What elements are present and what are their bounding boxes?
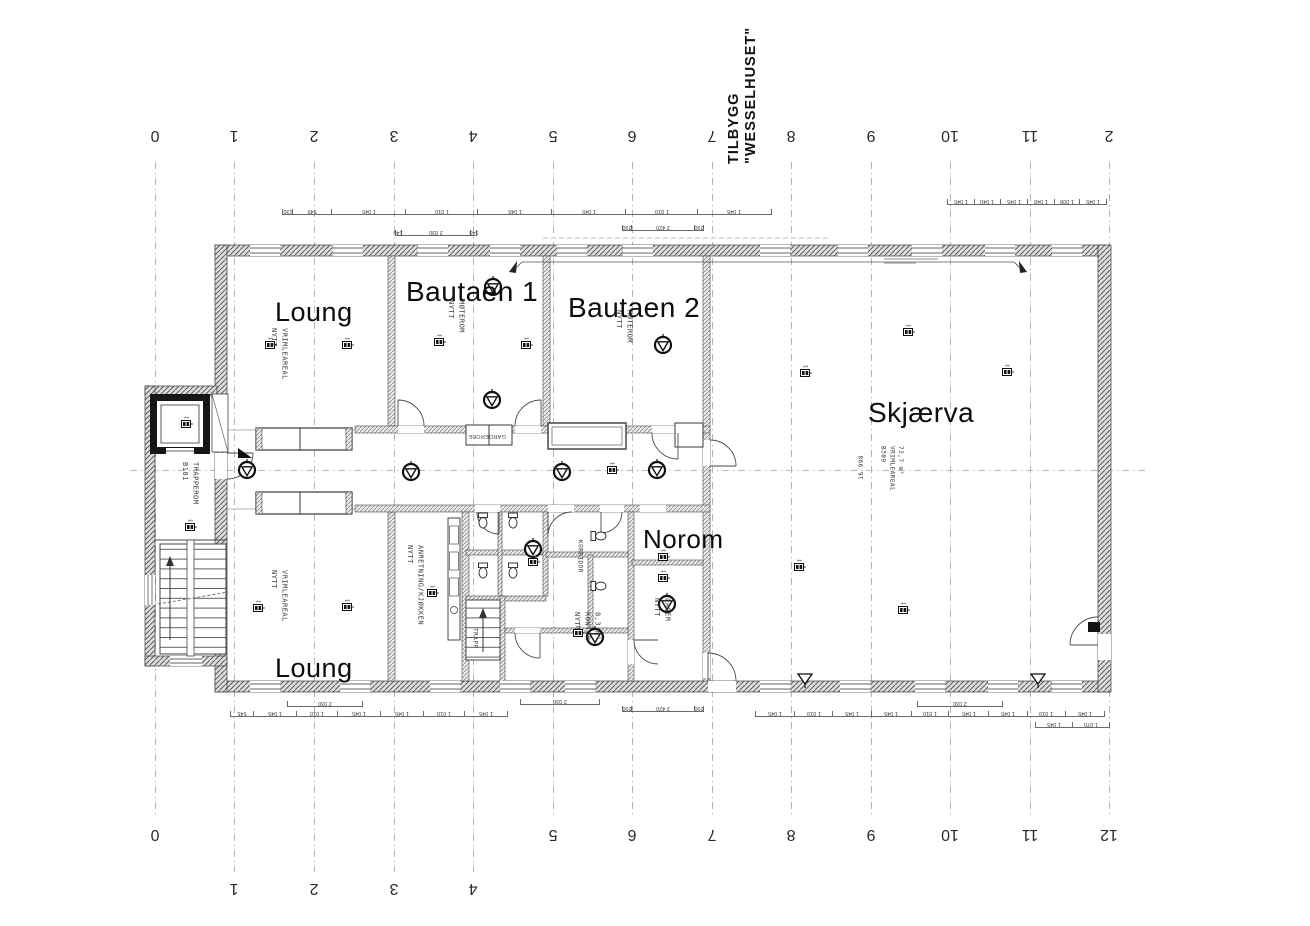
dimension-segment: 545 — [293, 209, 332, 214]
room-label-bautaen-1: Bautaen 1 — [406, 276, 538, 308]
dimension-chain-top-left-opening: 1402 030140 — [395, 226, 477, 236]
room-label-norom: Norom — [643, 524, 724, 555]
annotation-vrimleareal-bottom: NYTT VRIMLEAREAL — [269, 570, 289, 622]
electrical-point-icon — [795, 561, 806, 571]
ventilation-valve-icon — [239, 459, 255, 478]
window-icon — [565, 681, 595, 692]
dimension-chain-bottom-mid-opening: 2902 420290 — [622, 702, 704, 712]
dimension-segment: 1 045 — [478, 209, 552, 214]
dimension-segment: 290 — [695, 706, 704, 711]
dimension-segment: 2 420 — [632, 225, 696, 230]
dimension-chain-top-right: 1 0451 0401 0451 0481 0081 045 — [947, 195, 1107, 205]
window-icon — [333, 245, 363, 256]
dimension-chain-top-mid-opening: 2902 420290 — [622, 221, 704, 231]
wc-icon — [591, 532, 606, 541]
dimension-segment: 1 045 — [872, 711, 911, 716]
electrical-point-icon — [899, 604, 910, 614]
dimension-segment: 1 048 — [1028, 199, 1055, 204]
dimension-segment: 1 010 — [297, 711, 338, 716]
dimension-segment: 290 — [622, 225, 632, 230]
dimension-segment: 290 — [695, 225, 704, 230]
electrical-point-icon — [343, 601, 354, 611]
dimension-segment: 1 045 — [381, 711, 424, 716]
electrical-point-icon — [343, 339, 354, 349]
window-icon — [840, 681, 870, 692]
dimension-segment: 1 045 — [1066, 711, 1105, 716]
ventilation-valve-icon — [655, 334, 671, 353]
dimension-segment: 1 010 — [406, 209, 478, 214]
window-icon — [760, 681, 790, 692]
annotation-vrimleareal-top: NYTT VRIMLEAREAL — [269, 328, 289, 380]
dimension-segment: 2 420 — [632, 706, 696, 711]
window-icon — [557, 245, 587, 256]
dimension-segment: 1 045 — [949, 711, 988, 716]
annex-title: TILBYGG "WESSELHUSET" — [726, 22, 759, 164]
ventilation-valve-icon — [403, 461, 419, 480]
window-icon — [760, 245, 790, 256]
ventilation-valve-icon — [554, 461, 570, 480]
dimension-segment: 1 045 — [338, 711, 381, 716]
dimension-segment: 1 045 — [947, 199, 975, 204]
window-icon — [915, 681, 945, 692]
dimension-segment: 1 008 — [1055, 199, 1081, 204]
electrical-point-icon — [608, 464, 619, 474]
annotation-moterom-1: NYTT MØTEROM — [446, 300, 466, 333]
wc-icon — [479, 513, 488, 528]
dimension-chain-bottom-left-opening: 2 030 — [287, 697, 363, 707]
electrical-point-icon — [522, 339, 533, 349]
window-icon — [500, 681, 530, 692]
dimension-segment: 1 045 — [552, 209, 626, 214]
dimension-segment: 1 045 — [755, 711, 795, 716]
annotation-kjokken: NYTT ANRETNING/KJØKKEN — [405, 545, 425, 625]
dimension-segment: 1 010 — [1028, 711, 1066, 716]
annotation-kontor: NYTT KONTOR 8,3 m² — [572, 612, 602, 640]
dimension-segment: 2 030 — [917, 701, 1003, 706]
electrical-point-icon — [1003, 366, 1014, 376]
ventilation-valve-icon — [484, 389, 500, 408]
wc-icon — [479, 563, 488, 578]
window-icon — [985, 245, 1015, 256]
wc-icon — [509, 563, 518, 578]
electrical-point-icon — [428, 587, 439, 597]
annotation-garderobe: GARDEROBE — [468, 433, 506, 439]
dimension-segment: 1 010 — [626, 209, 698, 214]
dimension-segment: 1 045 — [989, 711, 1028, 716]
window-icon — [418, 245, 448, 256]
stair-left — [158, 540, 228, 656]
dimension-segment: 140 — [471, 230, 477, 235]
wc-icon — [591, 582, 606, 591]
dimension-segment: 140 — [395, 230, 402, 235]
room-label-loung-bottom: Loung — [275, 653, 353, 684]
annotation-trapperom: B101 TRAPPEROM — [180, 462, 200, 504]
electrical-point-icon — [186, 521, 197, 531]
dimension-segment: 1 045 — [1035, 722, 1073, 727]
dimension-segment: 1 045 — [465, 711, 508, 716]
dimension-segment: 1 045 — [833, 711, 872, 716]
window-icon — [623, 245, 653, 256]
window-icon — [1052, 681, 1082, 692]
dimension-segment: 2 030 — [402, 230, 472, 235]
dimension-segment: 1 040 — [975, 199, 1002, 204]
dimension-chain-bottom-right: 1 0451 0101 0451 0451 0101 0451 0451 010… — [755, 707, 1105, 717]
annotation-korridor: KORRIDOR — [575, 540, 584, 573]
room-label-loung-top: Loung — [275, 297, 353, 328]
ventilation-valve-icon — [649, 459, 665, 478]
window-icon — [838, 245, 868, 256]
dimension-chain-top-left: 1305451 0451 0101 0451 0451 0101 045 — [282, 205, 772, 215]
dimension-segment: 130 — [282, 209, 293, 214]
dimension-segment: 1 045 — [1001, 199, 1028, 204]
annotation-vrimleareal-skjaerva: B309 VRIMLEAREAL 73,7 m² — [878, 446, 904, 491]
electrical-point-icon — [435, 336, 446, 346]
dimension-segment: 2 030 — [287, 701, 363, 706]
annotation-trapp: TRAPP — [470, 628, 479, 649]
electrical-point-icon — [904, 326, 915, 336]
dimension-segment: 1 010 — [424, 711, 465, 716]
dimension-segment: 1 045 — [698, 209, 772, 214]
dimension-segment: 2 030 — [520, 699, 600, 704]
window-icon — [430, 681, 460, 692]
dimension-segment: 1 045 — [254, 711, 297, 716]
window-icon — [250, 245, 280, 256]
dimension-segment: 1 070 — [1073, 722, 1110, 727]
dimension-segment: 1 045 — [332, 209, 406, 214]
wall-fixture — [1088, 622, 1100, 632]
electrical-point-icon — [801, 367, 812, 377]
annotation-lager: NYTT LAGER — [652, 598, 672, 622]
window-icon — [145, 575, 155, 605]
leader-bracket — [509, 259, 1027, 273]
dimension-chain-bottom-mid2-opening: 2 030 — [520, 695, 600, 705]
annex-title-line1: TILBYGG — [726, 22, 742, 164]
dimension-segment: 1 010 — [795, 711, 833, 716]
dimension-segment: 290 — [622, 706, 632, 711]
window-icon — [912, 245, 942, 256]
annex-title-line2: "WESSELHUSET" — [743, 22, 759, 164]
window-icon — [988, 681, 1018, 692]
electrical-point-icon — [254, 602, 265, 612]
dimension-segment: 1 010 — [912, 711, 950, 716]
dimension-chain-bottom-right-opening: 2 030 — [917, 697, 1003, 707]
window-icon — [1052, 245, 1082, 256]
window-icon — [490, 245, 520, 256]
dimension-segment: 1 045 — [1080, 199, 1107, 204]
floorplan-sheet: 0011223344556677889910101111212 — [0, 0, 1310, 926]
annotation-moterom-2: NYTT MØTEROM — [614, 310, 634, 343]
annotation-dim-16998: 16 998 — [858, 455, 867, 480]
dimension-segment: 545 — [230, 711, 254, 716]
room-label-skjaerva: Skjærva — [868, 397, 974, 429]
ventilation-valve-icon — [525, 538, 541, 557]
kitchen-counter — [448, 518, 460, 640]
electrical-point-icon — [659, 572, 670, 582]
dimension-chain-bottom-far-right: 1 0451 070 — [1035, 718, 1110, 728]
wc-icon — [509, 513, 518, 528]
dimension-chain-bottom-left: 5451 0451 0101 0451 0451 0101 045 — [230, 707, 508, 717]
